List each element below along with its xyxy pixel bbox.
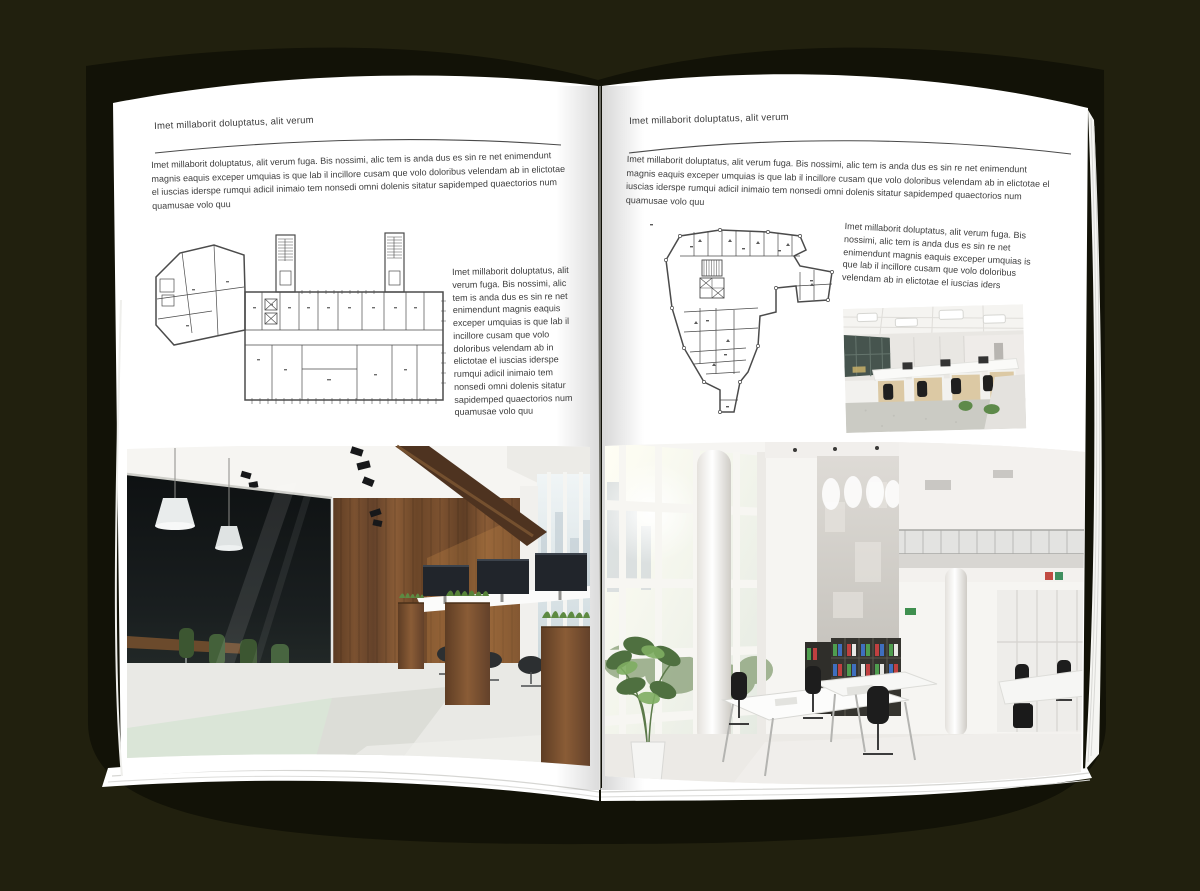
left-page-intro-paragraph: Imet millaborit doluptatus, alit verum f…: [151, 149, 572, 214]
left-page-caption-text: Imet millaborit doluptatus, alit verum f…: [452, 264, 581, 419]
right-page-intro-paragraph: Imet millaborit doluptatus, alit verum f…: [626, 153, 1051, 219]
magazine-spread-mockup: Imet millaborit doluptatus, alit verum I…: [0, 0, 1200, 891]
right-page-caption-text: Imet millaborit doluptatus, alit verum f…: [842, 220, 1043, 294]
small-office-photo: [843, 304, 1026, 433]
left-office-photo: [127, 446, 590, 768]
right-office-photo: [599, 442, 1085, 794]
book-spread-illustration: [0, 0, 1200, 891]
